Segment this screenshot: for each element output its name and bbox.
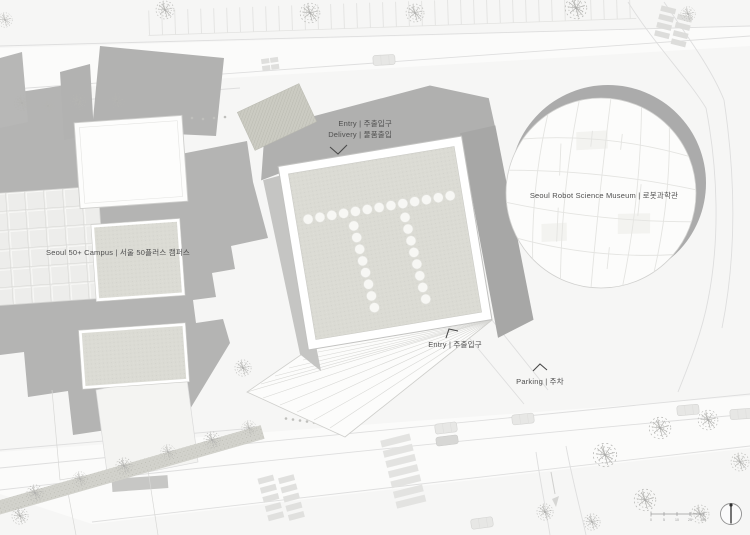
campus-patio-roof-2 (80, 324, 188, 387)
campus-label: Seoul 50+ Campus | 서울 50플러스 캠퍼스 (46, 247, 190, 258)
scale-tick: 50 (702, 518, 706, 522)
roof-surface (288, 146, 481, 339)
north-arrow-icon (721, 503, 742, 524)
campus-patio-roof-1 (93, 220, 184, 300)
delivery-label: Delivery | 물품출입 (292, 129, 392, 140)
scale-tick: 5 (663, 518, 665, 522)
entry-delivery-label: Entry | 주출입구 Delivery | 물품출입 (292, 118, 392, 140)
campus-white-roof (74, 115, 188, 208)
site-plan-drawing: 0 5 10 25 50 (0, 0, 750, 535)
entry-plaza-label: Entry | 주출입구 (420, 339, 490, 350)
entry-top-label: Entry | 주출입구 (292, 118, 392, 129)
parking-label: Parking | 주차 (505, 376, 575, 387)
scale-tick: 10 (675, 518, 679, 522)
museum-label: Seoul Robot Science Museum | 로봇과학관 (519, 190, 689, 201)
site-plan: 0 5 10 25 50 Entry | 주출입구 Delivery | 물품출… (0, 0, 750, 535)
scale-tick: 0 (650, 518, 652, 522)
scale-tick: 25 (688, 518, 692, 522)
